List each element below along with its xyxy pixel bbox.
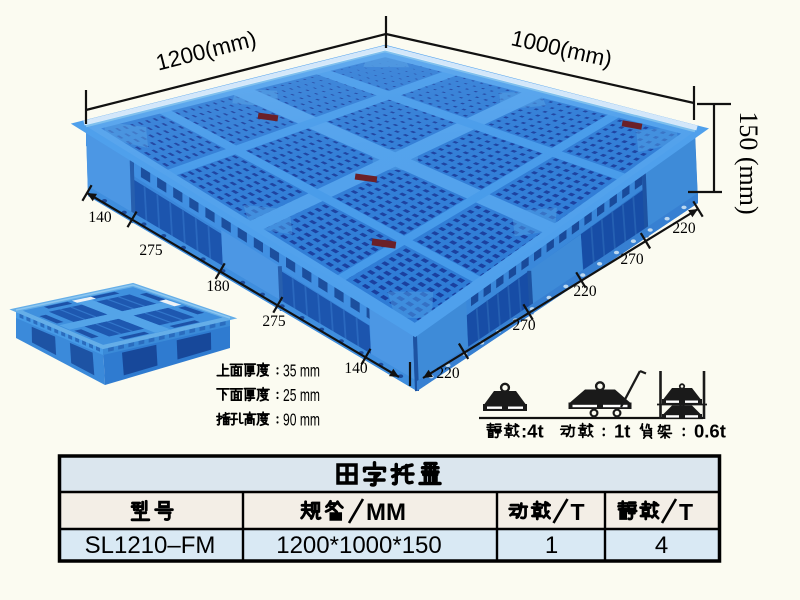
svg-text:1: 1 bbox=[545, 532, 558, 559]
svg-text:4: 4 bbox=[655, 532, 668, 559]
svg-text:35 mm: 35 mm bbox=[283, 361, 320, 381]
svg-text:220: 220 bbox=[436, 365, 460, 382]
svg-text:140: 140 bbox=[88, 209, 112, 226]
svg-text::4t: :4t bbox=[521, 421, 544, 442]
svg-text:180: 180 bbox=[206, 278, 230, 295]
svg-text:1200*1000*150: 1200*1000*150 bbox=[276, 532, 442, 559]
svg-text:0.6t: 0.6t bbox=[694, 421, 726, 442]
svg-text:270: 270 bbox=[620, 251, 644, 268]
svg-text:140: 140 bbox=[344, 360, 368, 377]
svg-text:T: T bbox=[679, 499, 693, 525]
svg-text:220: 220 bbox=[672, 220, 696, 237]
svg-text:SL1210–FM: SL1210–FM bbox=[85, 532, 216, 559]
svg-text:275: 275 bbox=[262, 313, 286, 330]
svg-text:90 mm: 90 mm bbox=[283, 410, 320, 430]
svg-text:270: 270 bbox=[512, 317, 536, 334]
svg-text:MM: MM bbox=[366, 499, 406, 526]
svg-text:150 (mm): 150 (mm) bbox=[734, 111, 763, 214]
svg-text:1200(mm): 1200(mm) bbox=[153, 26, 259, 75]
svg-text:1t: 1t bbox=[614, 421, 630, 442]
svg-text:T: T bbox=[571, 499, 585, 525]
svg-text:220: 220 bbox=[573, 283, 597, 300]
svg-text:25 mm: 25 mm bbox=[283, 385, 320, 405]
svg-text:275: 275 bbox=[139, 242, 163, 259]
